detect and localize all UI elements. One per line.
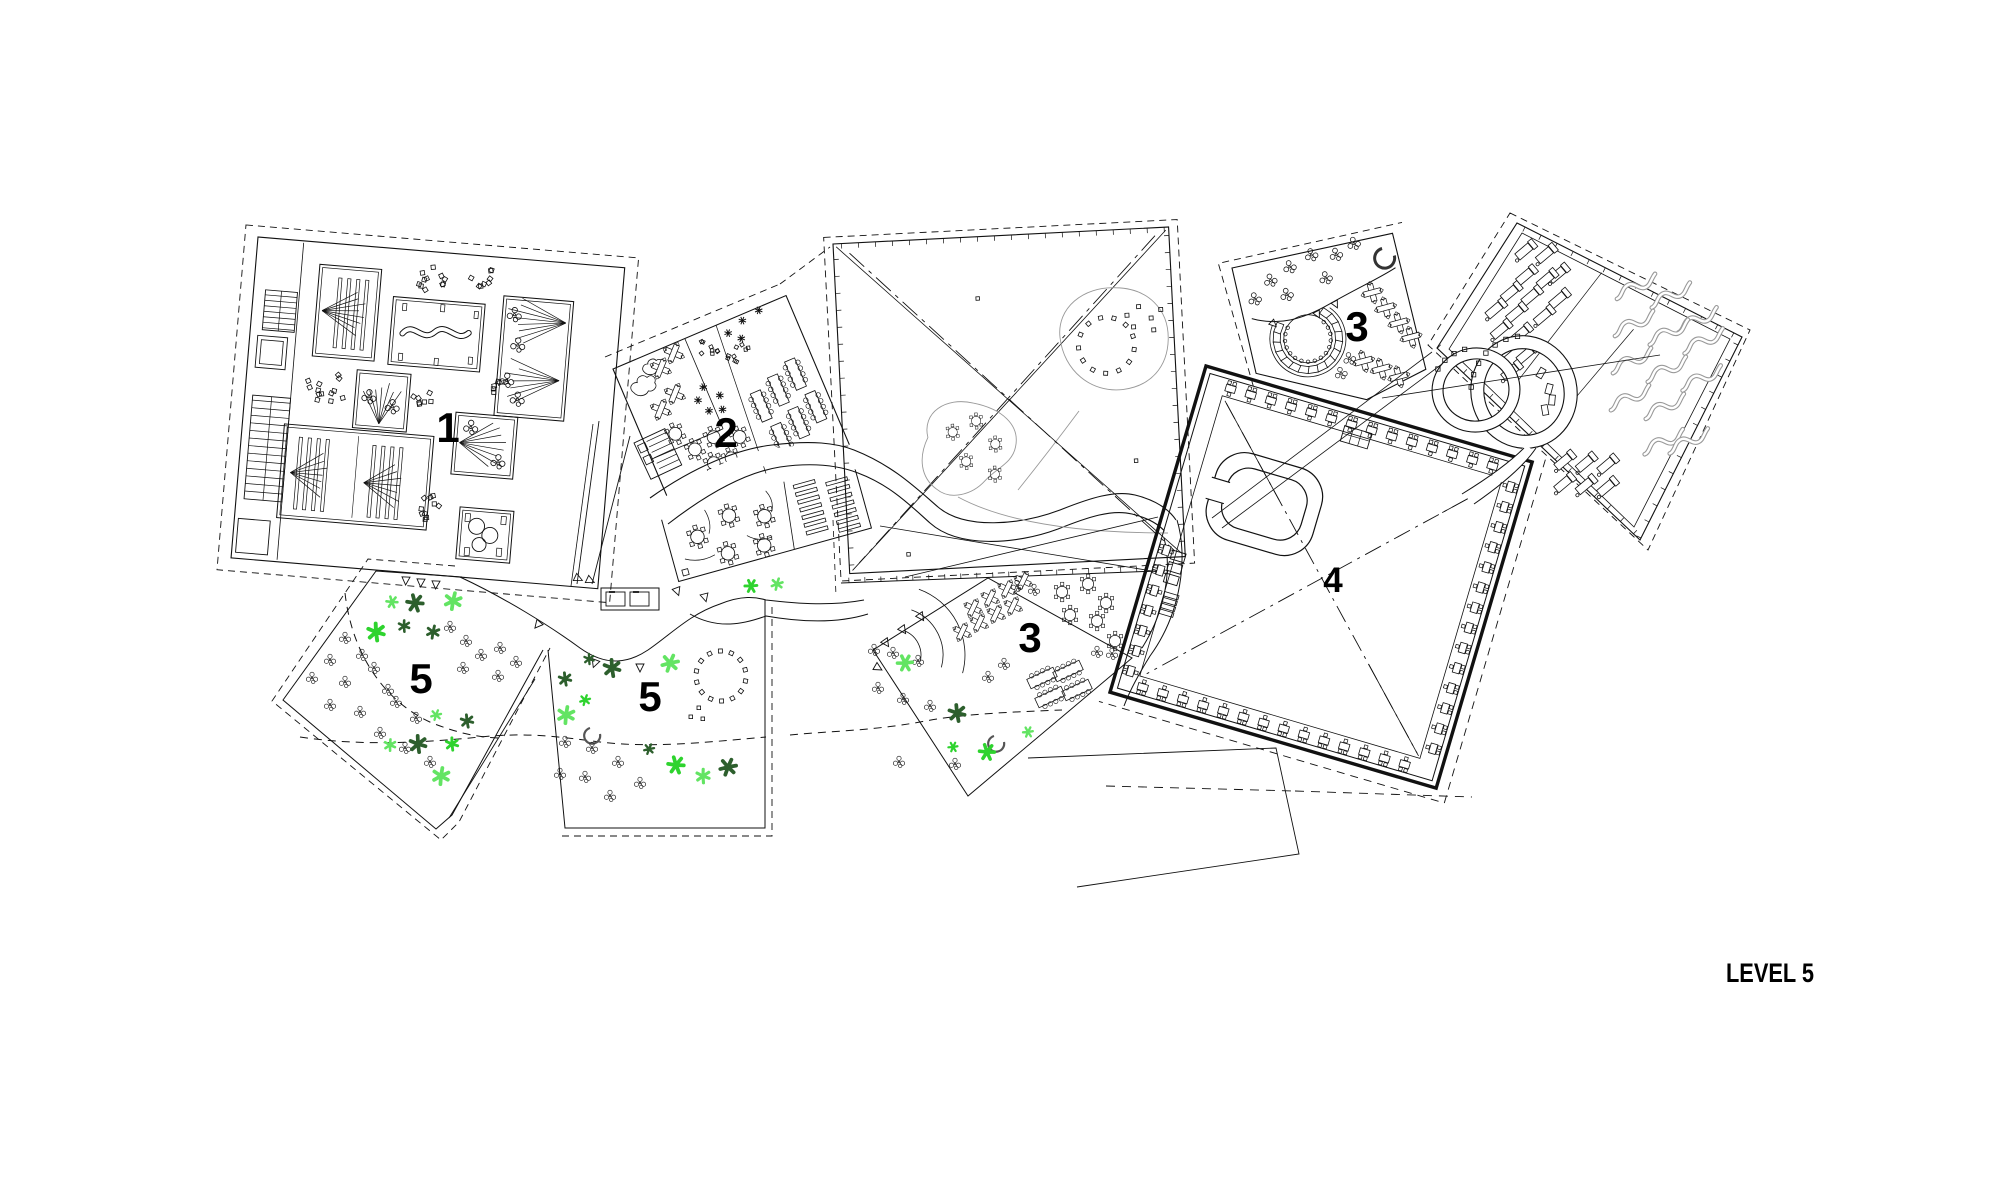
svg-text:3: 3 <box>1018 614 1041 661</box>
svg-text:5: 5 <box>409 655 432 702</box>
svg-text:2: 2 <box>714 409 737 456</box>
svg-text:3: 3 <box>1345 303 1368 350</box>
svg-text:1: 1 <box>436 404 459 451</box>
svg-text:4: 4 <box>1323 561 1343 600</box>
svg-text:LEVEL 5: LEVEL 5 <box>1726 958 1814 988</box>
svg-text:5: 5 <box>638 673 661 720</box>
